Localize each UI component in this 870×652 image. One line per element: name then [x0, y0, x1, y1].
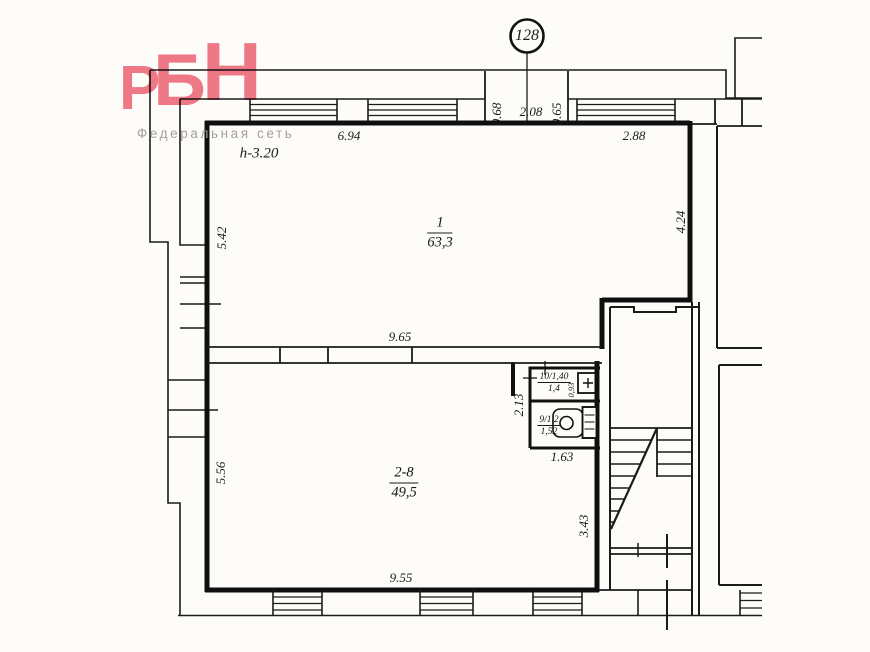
- logo-subtitle: Федеральная сеть: [137, 126, 294, 141]
- floorplan-canvas: Р Б Н Федеральная сеть 128 h-3.20 1 63,3…: [0, 0, 870, 652]
- dim-bottom-width: 9.55: [390, 570, 413, 586]
- room-1-number: 1: [427, 215, 452, 234]
- room-1-label: 1 63,3: [427, 215, 452, 252]
- room-2-8-number: 2-8: [389, 465, 418, 484]
- dim-right-lower: 3.43: [576, 515, 592, 538]
- dim-entry-width: 2.08: [520, 104, 543, 120]
- dim-left-upper: 5.42: [214, 227, 230, 250]
- main-walls: [205, 121, 692, 592]
- dim-wc-lobby-depth: 2.13: [511, 394, 527, 417]
- windows-bottom: [273, 590, 762, 616]
- logo-letter-b: Б: [153, 55, 203, 108]
- room-1-area: 63,3: [427, 234, 452, 252]
- logo-letter-n: Н: [202, 42, 260, 102]
- dim-left-lower: 5.56: [213, 462, 229, 485]
- dim-top-right-window: 2.88: [623, 128, 646, 144]
- dim-top-window-run: 6.94: [338, 128, 361, 144]
- right-rooms: [717, 126, 762, 585]
- wc-9-width: 1,52: [537, 426, 560, 437]
- room-2-8-area: 49,5: [389, 484, 418, 502]
- wc-10-depth: 0,93: [566, 383, 576, 398]
- dim-right-upper: 4.24: [673, 211, 689, 234]
- height-note: h-3.20: [240, 146, 279, 163]
- windows-top: [250, 99, 675, 123]
- unit-number-label: 128: [515, 27, 539, 45]
- logo: Р Б Н: [119, 28, 260, 112]
- dim-entry-left: 0.68: [489, 103, 505, 126]
- room-2-8-label: 2-8 49,5: [389, 465, 418, 502]
- dim-middle-width: 9.65: [389, 329, 412, 345]
- dim-wc-width: 1.63: [551, 449, 574, 465]
- interior-partition: [207, 347, 602, 363]
- wc-9-number: 9/1,2: [537, 415, 560, 426]
- staircase: [599, 302, 699, 630]
- dim-entry-right: 0.65: [549, 103, 565, 126]
- wc-10-number: 10/1,40: [538, 372, 571, 383]
- wc-9-label: 9/1,2 1,52: [537, 415, 560, 437]
